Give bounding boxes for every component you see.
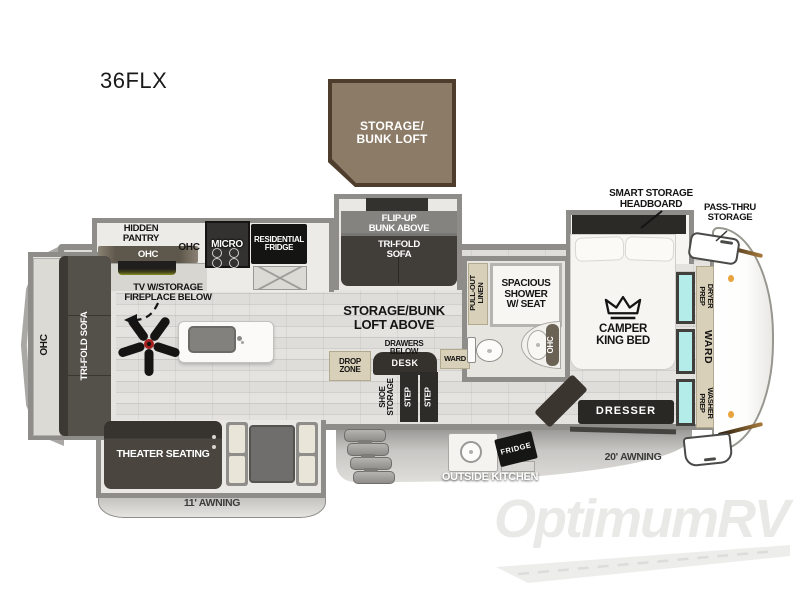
bunk-trifold-sofa-label: TRI-FOLD SOFA — [357, 240, 441, 260]
bed-headboard — [572, 215, 686, 234]
window — [676, 272, 695, 324]
step-riser — [364, 468, 378, 472]
bench-cushion — [299, 456, 315, 483]
step-label: STEP — [425, 387, 433, 407]
island-sink-icon — [188, 326, 236, 353]
loft-ward: WARD — [440, 349, 470, 369]
loft-ward-label: WARD — [444, 355, 466, 363]
drawers-below-label: DRAWERS BELOW — [369, 340, 439, 357]
loft-step-2: STEP — [420, 372, 438, 422]
outside-sink-icon — [460, 441, 482, 463]
bath-ohc-label: OHC — [547, 325, 557, 365]
toilet-bowl-icon — [476, 339, 503, 362]
drop-zone-label: DROP ZONE — [339, 358, 361, 375]
marker-light — [728, 411, 734, 418]
door-vent — [720, 240, 733, 245]
step-tread — [353, 471, 395, 484]
ward-label: WARD — [699, 319, 713, 375]
pull-out-linen-label: PULL-OUT LINEN — [469, 264, 487, 322]
desk-label: DESK — [391, 359, 418, 368]
dinette-bench — [226, 422, 248, 486]
crown-icon — [604, 295, 642, 321]
step-riser — [358, 440, 372, 444]
step-label: STEP — [405, 387, 413, 407]
burner-icon — [212, 258, 222, 268]
rear-ohc-label: OHC — [40, 315, 52, 375]
cupholder-icon — [212, 435, 216, 439]
pillow — [625, 236, 675, 262]
outside-kitchen-label: OUTSIDE KITCHEN — [428, 472, 552, 484]
outside-kitchen-box — [448, 433, 498, 472]
bench-cushion — [299, 425, 315, 453]
sink-drain — [536, 343, 540, 347]
faucet-icon — [237, 336, 242, 341]
residential-fridge-label: RESIDENTIAL FRIDGE — [254, 236, 304, 253]
bench-cushion — [229, 425, 245, 453]
watermark-logo: OptimumRV — [494, 488, 794, 550]
flip-up-bunk-band: FLIP-UP BUNK ABOVE — [341, 211, 457, 236]
toilet-icon — [467, 337, 476, 363]
hidden-pantry-label: HIDDEN PANTRY — [99, 224, 183, 244]
kitchen-ohc-label: OHC — [174, 243, 204, 254]
entry-door — [683, 433, 734, 468]
storage-bunk-loft-above-label: STORAGE/BUNK LOFT ABOVE — [329, 304, 459, 331]
fridge-counter — [253, 266, 307, 290]
washer-prep-label: WASHER PREP — [698, 375, 714, 431]
page-title: 36FLX — [100, 68, 167, 94]
toilet-drain — [487, 349, 492, 353]
bench-cushion — [229, 456, 245, 483]
outside-fridge-label: FRIDGE — [500, 441, 532, 456]
flip-up-bunk-label: FLIP-UP BUNK ABOVE — [369, 214, 430, 234]
tv-fireplace — [118, 261, 176, 275]
burner-icon — [229, 258, 239, 268]
marker-light — [728, 275, 734, 282]
window — [676, 329, 695, 374]
shoe-storage-label: SHOE STORAGE — [379, 372, 399, 422]
loft-step-1: STEP — [400, 372, 418, 422]
smart-storage-headboard-label: SMART STORAGE HEADBOARD — [596, 189, 706, 210]
dresser-label: DRESSER — [596, 406, 656, 418]
drop-zone: DROP ZONE — [329, 351, 371, 381]
tv-fireplace-label: TV W/STORAGE FIREPLACE BELOW — [118, 283, 218, 303]
awning-20-label: 20' AWNING — [588, 452, 678, 463]
pillow — [575, 236, 625, 262]
pass-thru-storage-label: PASS-THRU STORAGE — [693, 203, 767, 223]
watermark-road — [494, 543, 796, 585]
residential-fridge: RESIDENTIAL FRIDGE — [251, 224, 307, 264]
awning-11-label: 11' AWNING — [184, 498, 240, 509]
floorplan-canvas: 36FLX STORAGE/ BUNK LOFT 20' AWNING OUTS… — [0, 0, 800, 600]
dryer-prep-label: DRYER PREP — [698, 268, 714, 324]
cupholder-icon — [212, 445, 216, 449]
ceiling-fan-icon — [116, 314, 182, 376]
shower: SPACIOUS SHOWER W/ SEAT — [490, 263, 562, 327]
camper-king-bed-label: CAMPER KING BED — [571, 323, 675, 347]
bunk-tv-band — [366, 198, 428, 211]
theater-seating: THEATER SEATING — [104, 421, 222, 489]
kitchen-island — [178, 321, 274, 363]
micro-label: MICRO — [203, 240, 251, 251]
door-handle — [704, 457, 716, 461]
step-riser — [361, 454, 375, 458]
theater-seating-label: THEATER SEATING — [116, 449, 209, 460]
dresser: DRESSER — [578, 400, 674, 424]
storage-bunk-loft-box: STORAGE/ BUNK LOFT — [328, 79, 456, 187]
storage-bunk-loft-box-inner: STORAGE/ BUNK LOFT — [332, 83, 452, 183]
sink-drain — [469, 450, 473, 454]
shower-label: SPACIOUS SHOWER W/ SEAT — [501, 279, 550, 311]
dinette-bench — [296, 422, 318, 486]
pantry-ohc-label: OHC — [138, 250, 158, 260]
rear-trifold-sofa-label: TRI-FOLD SOFA — [80, 296, 92, 396]
dinette-table — [249, 425, 295, 483]
storage-bunk-loft-label: STORAGE/ BUNK LOFT — [356, 120, 427, 145]
window — [676, 379, 695, 426]
